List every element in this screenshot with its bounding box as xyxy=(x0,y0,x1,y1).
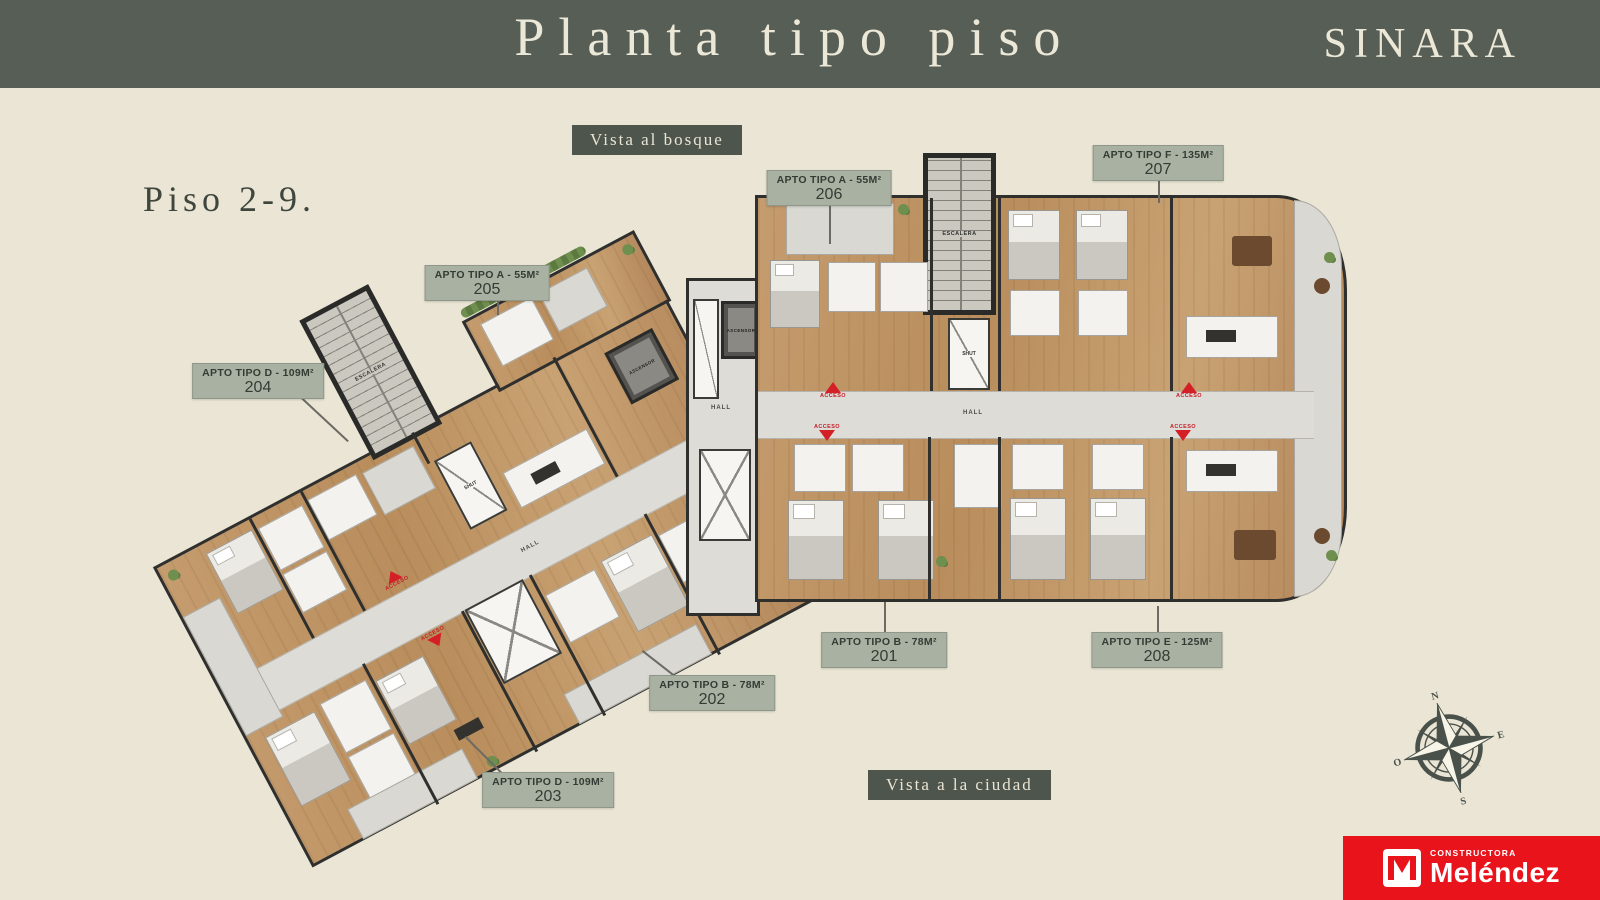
access-arrow-icon xyxy=(825,382,841,393)
room xyxy=(545,569,620,643)
access-marker: ACCESO xyxy=(1166,382,1212,399)
apt-badge-207: APTO TIPO F - 135M² 207 xyxy=(1093,145,1224,181)
apt-badge-202: APTO TIPO B - 78M² 202 xyxy=(649,675,775,711)
apt-number: 202 xyxy=(659,691,765,708)
access-marker: ACCESO xyxy=(1160,424,1206,441)
apt-badge-204: APTO TIPO D - 109M² 204 xyxy=(192,363,324,399)
chute-label: SHUT xyxy=(961,351,977,357)
bed xyxy=(1008,210,1060,280)
elevator-label: ASCENSOR xyxy=(728,308,754,352)
wall xyxy=(928,437,931,602)
shaft xyxy=(693,299,719,399)
view-badge-forest: Vista al bosque xyxy=(572,125,742,155)
elevator-label: ASCENSOR xyxy=(614,337,670,395)
melendez-m-icon xyxy=(1383,849,1421,887)
apt-type: APTO TIPO F - 135M² xyxy=(1103,149,1214,161)
room xyxy=(480,297,554,367)
header-bar: Planta tipo piso SINARA xyxy=(0,0,1600,88)
room xyxy=(828,262,876,312)
constructor-logo: CONSTRUCTORA Meléndez xyxy=(1343,836,1600,900)
access-label: ACCESO xyxy=(1166,393,1212,399)
apt-number: 208 xyxy=(1101,648,1212,665)
kitchen-island xyxy=(1206,330,1236,342)
logo-line2: Meléndez xyxy=(1430,859,1560,887)
plant xyxy=(1324,252,1335,263)
compass-west: O xyxy=(1392,757,1403,770)
plant xyxy=(898,204,909,215)
access-marker: ACCESO xyxy=(804,424,850,441)
room xyxy=(307,474,377,540)
apt-badge-206: APTO TIPO A - 55M² 206 xyxy=(767,170,892,206)
apt-number: 207 xyxy=(1103,161,1214,178)
kitchen-island xyxy=(454,717,484,741)
junction-lobby: ASCENSOR HALL xyxy=(686,278,760,616)
compass-east: E xyxy=(1496,729,1506,741)
compass-icon: N E S O xyxy=(1389,688,1509,808)
elevator-left: ASCENSOR xyxy=(604,328,679,405)
apt-type: APTO TIPO D - 109M² xyxy=(202,367,314,379)
apt-number: 206 xyxy=(777,186,882,203)
brand-logo: SINARA xyxy=(1324,20,1522,68)
leader-line xyxy=(829,200,831,244)
kitchen-island xyxy=(1206,464,1236,476)
apt-number: 204 xyxy=(202,379,314,396)
balcony xyxy=(786,203,894,255)
bed xyxy=(1090,498,1146,580)
bed xyxy=(878,500,934,580)
hall-label: HALL xyxy=(963,410,983,416)
leader-line xyxy=(1157,606,1159,632)
apt-badge-201: APTO TIPO B - 78M² 201 xyxy=(821,632,947,668)
wall xyxy=(1170,437,1173,602)
bed xyxy=(770,260,820,328)
apt-type: APTO TIPO D - 109M² xyxy=(492,776,604,788)
room xyxy=(794,444,846,492)
stairwell-right: ESCALERA xyxy=(923,153,996,315)
bed xyxy=(788,500,844,580)
bed xyxy=(375,656,456,745)
room xyxy=(1010,290,1060,336)
apt-number: 205 xyxy=(435,281,540,298)
chute-shaft-right: SHUT xyxy=(948,318,990,390)
access-arrow-icon xyxy=(1175,430,1191,441)
room xyxy=(852,444,904,492)
wall xyxy=(998,437,1001,602)
room xyxy=(880,262,928,312)
plant xyxy=(620,242,635,257)
wall xyxy=(998,198,1001,391)
hall-label: HALL xyxy=(711,405,731,411)
access-marker: ACCESO xyxy=(810,382,856,399)
plant xyxy=(166,568,181,583)
room xyxy=(1078,290,1128,336)
apt-number: 203 xyxy=(492,788,604,805)
chute-shaft-left: SHUT xyxy=(434,441,508,530)
bed xyxy=(1076,210,1128,280)
floor-range-label: Piso 2-9. xyxy=(143,178,316,220)
compass-rose: N E S O xyxy=(1389,688,1509,808)
access-arrow-icon xyxy=(1181,382,1197,393)
apt-type: APTO TIPO A - 55M² xyxy=(777,174,882,186)
wall xyxy=(1170,198,1173,391)
chute-label: SHUT xyxy=(462,479,479,492)
compass-north: N xyxy=(1430,690,1441,703)
apt-number: 201 xyxy=(831,648,937,665)
view-badge-city: Vista a la ciudad xyxy=(868,770,1051,800)
dining-table xyxy=(1232,236,1272,266)
leader-line xyxy=(884,602,886,632)
wall xyxy=(930,198,933,391)
stairs-label: ESCALERA xyxy=(353,361,388,383)
apt-type: APTO TIPO B - 78M² xyxy=(659,679,765,691)
shaft xyxy=(699,449,751,541)
plant xyxy=(936,556,947,567)
plant xyxy=(1326,550,1337,561)
apt-badge-203: APTO TIPO D - 109M² 203 xyxy=(482,772,614,808)
dining-table xyxy=(1234,530,1276,560)
apt-type: APTO TIPO B - 78M² xyxy=(831,636,937,648)
access-label: ACCESO xyxy=(1160,424,1206,430)
access-label: ACCESO xyxy=(810,393,856,399)
room xyxy=(954,444,1002,508)
terrace-table xyxy=(1314,528,1330,544)
access-label: ACCESO xyxy=(804,424,850,430)
room xyxy=(1092,444,1144,490)
compass-south: S xyxy=(1459,796,1468,808)
apt-type: APTO TIPO A - 55M² xyxy=(435,269,540,281)
leader-line xyxy=(301,397,349,442)
apt-type: APTO TIPO E - 125M² xyxy=(1101,636,1212,648)
room xyxy=(1012,444,1064,490)
right-wing: HALL ESCALERA SHUT xyxy=(755,195,1347,602)
page-title: Planta tipo piso xyxy=(514,6,1074,68)
stairs-label: ESCALERA xyxy=(941,231,977,237)
access-arrow-icon xyxy=(819,430,835,441)
apt-badge-208: APTO TIPO E - 125M² 208 xyxy=(1091,632,1222,668)
bed xyxy=(1010,498,1066,580)
terrace-table xyxy=(1314,278,1330,294)
apt-badge-205: APTO TIPO A - 55M² 205 xyxy=(425,265,550,301)
